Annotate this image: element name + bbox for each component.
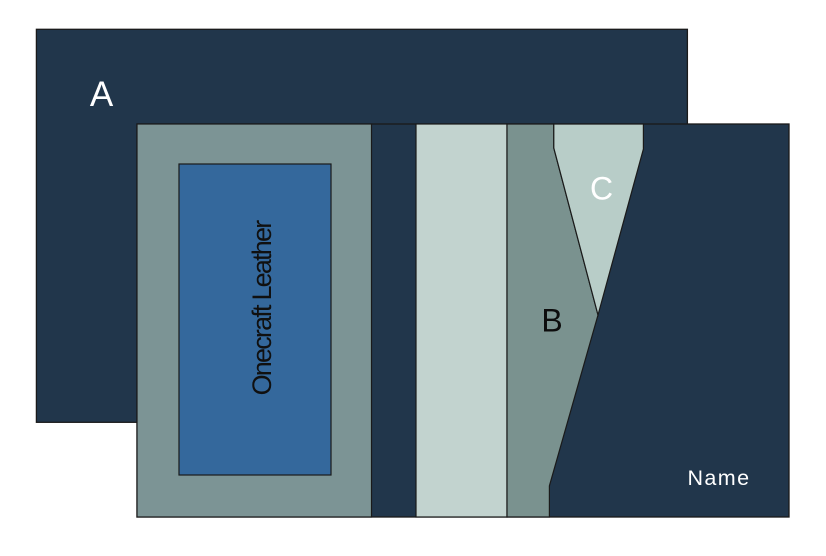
svg-text:Onecraft Leather: Onecraft Leather	[247, 220, 277, 396]
svg-text:C: C	[590, 171, 613, 207]
svg-text:A: A	[90, 75, 114, 114]
svg-text:Name: Name	[688, 466, 751, 490]
svg-text:B: B	[541, 302, 562, 338]
